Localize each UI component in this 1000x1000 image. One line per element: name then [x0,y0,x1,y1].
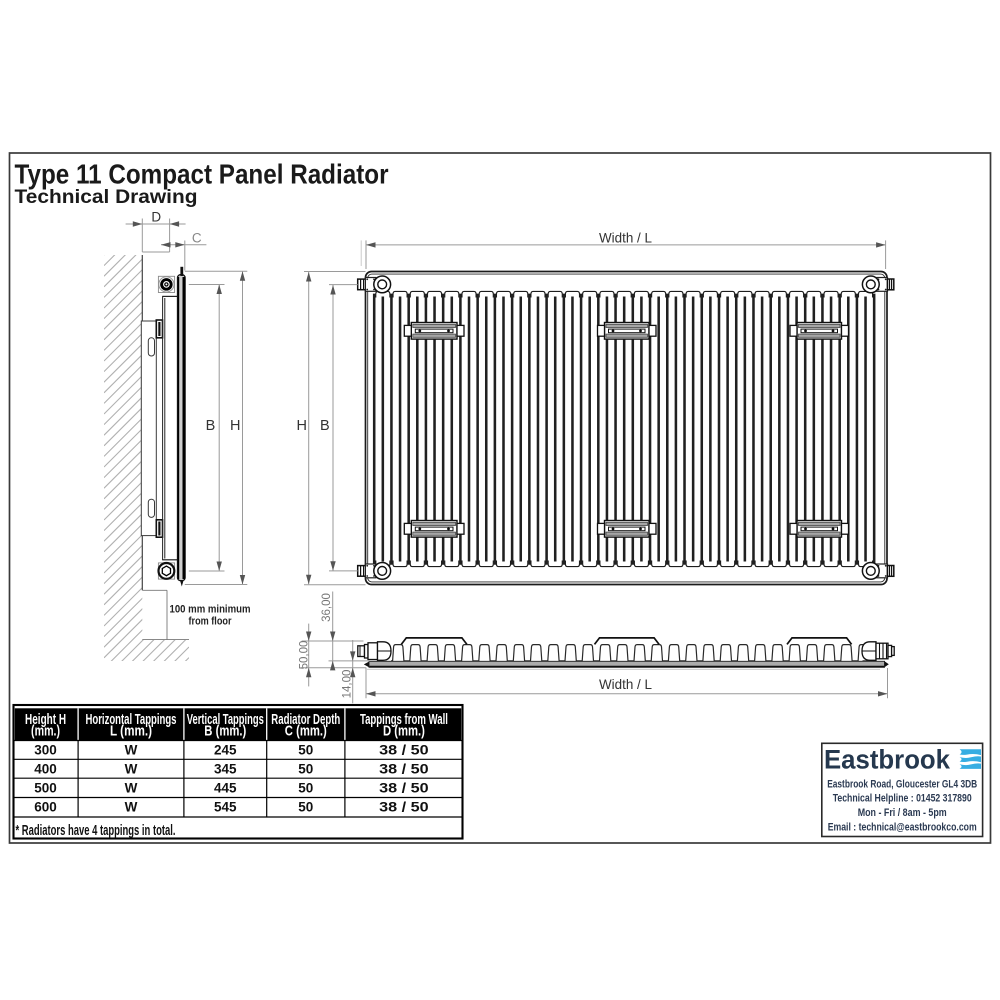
svg-text:38 / 50: 38 / 50 [379,743,429,758]
svg-text:50: 50 [298,800,313,815]
svg-text:H: H [297,418,307,434]
svg-text:D (mm.): D (mm.) [383,723,425,740]
svg-text:C (mm.): C (mm.) [285,723,327,740]
svg-text:545: 545 [214,800,237,815]
svg-text:W: W [125,761,138,776]
svg-text:14,00: 14,00 [341,670,353,699]
svg-text:50: 50 [298,780,313,795]
svg-text:W: W [125,780,138,795]
svg-text:W: W [125,743,138,758]
svg-text:D: D [151,210,161,225]
svg-text:500: 500 [34,780,57,795]
svg-text:Mon - Fri / 8am - 5pm: Mon - Fri / 8am - 5pm [858,807,947,819]
svg-text:* Radiators have 4 tappings in: * Radiators have 4 tappings in total. [16,822,176,839]
svg-text:B: B [206,418,216,434]
svg-text:100 mm minimum: 100 mm minimum [170,604,251,616]
svg-text:W: W [125,800,138,815]
svg-text:38 / 50: 38 / 50 [379,800,429,815]
svg-text:Eastbrook Road, Gloucester GL4: Eastbrook Road, Gloucester GL4 3DB [827,778,977,790]
svg-text:50: 50 [298,761,313,776]
svg-text:38 / 50: 38 / 50 [379,780,429,795]
svg-text:600: 600 [34,800,57,815]
svg-text:50,00: 50,00 [299,641,311,670]
svg-text:345: 345 [214,761,237,776]
svg-text:38 / 50: 38 / 50 [379,761,429,776]
svg-text:Width / L: Width / L [599,676,652,692]
svg-text:300: 300 [34,743,57,758]
svg-text:Type 11 Compact Panel Radiator: Type 11 Compact Panel Radiator [15,159,389,190]
svg-text:36,00: 36,00 [321,593,333,622]
svg-text:Technical Drawing: Technical Drawing [15,186,198,208]
svg-text:(mm.): (mm.) [31,723,60,740]
svg-text:Technical Helpline : 01452 317: Technical Helpline : 01452 317890 [833,793,972,805]
svg-text:L (mm.): L (mm.) [110,723,152,740]
svg-text:B: B [320,418,330,434]
svg-text:B (mm.): B (mm.) [204,723,246,740]
svg-text:400: 400 [34,761,57,776]
svg-text:C: C [192,230,202,245]
svg-text:50: 50 [298,743,313,758]
svg-text:H: H [230,418,240,434]
svg-text:from floor: from floor [189,616,233,628]
svg-text:Email : technical@eastbrookco.: Email : technical@eastbrookco.com [828,822,977,834]
svg-text:445: 445 [214,780,237,795]
svg-text:Width / L: Width / L [599,229,652,245]
svg-text:245: 245 [214,743,237,758]
svg-text:Eastbrook: Eastbrook [824,745,950,775]
